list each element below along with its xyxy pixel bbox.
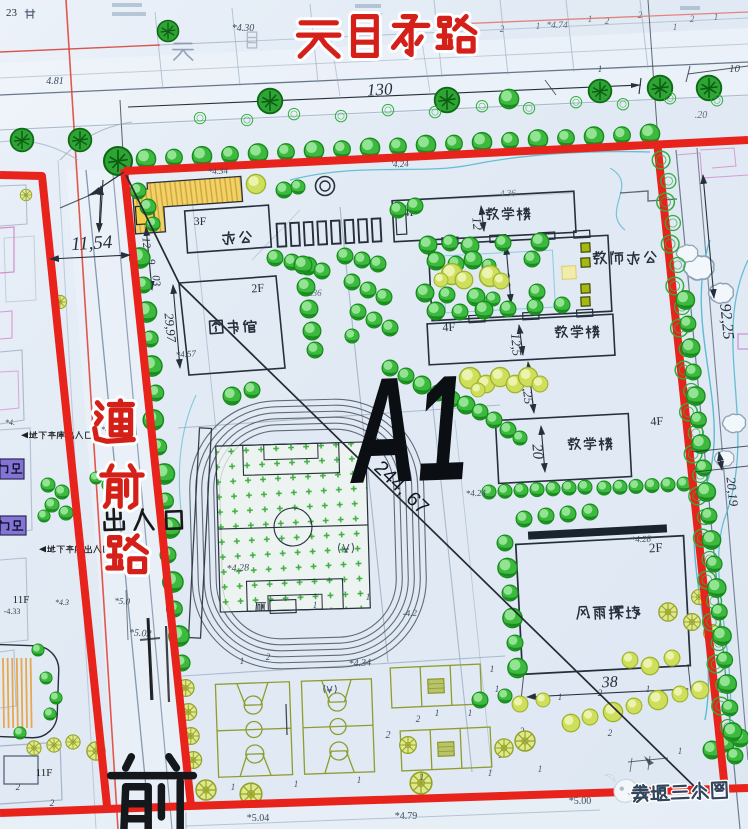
svg-text:20: 20 (528, 443, 545, 460)
svg-text:2: 2 (608, 728, 613, 738)
svg-text:*5.04: *5.04 (247, 813, 270, 824)
svg-text:2: 2 (500, 24, 505, 34)
svg-text:4F: 4F (650, 414, 664, 429)
svg-text:-4.2: -4.2 (402, 608, 417, 619)
svg-text:11,54: 11,54 (71, 232, 114, 255)
svg-text:1: 1 (536, 21, 541, 31)
svg-text:1: 1 (366, 592, 371, 602)
svg-text:2: 2 (386, 730, 391, 741)
svg-text:'4.24: '4.24 (391, 159, 410, 170)
svg-text:*4.: *4. (5, 418, 15, 427)
svg-text:23: 23 (6, 7, 18, 19)
svg-text:*5.0: *5.0 (114, 595, 131, 606)
svg-text:10: 10 (729, 63, 741, 75)
svg-text:2: 2 (16, 782, 21, 792)
svg-text:2: 2 (690, 14, 695, 24)
svg-text:-4.33: -4.33 (4, 607, 21, 616)
svg-text:2: 2 (50, 798, 55, 808)
svg-text:3F: 3F (194, 214, 207, 228)
svg-text:1: 1 (231, 782, 236, 792)
svg-text:.20: .20 (695, 110, 708, 121)
svg-text:2F: 2F (251, 281, 265, 296)
svg-text:*4.28: *4.28 (226, 562, 249, 574)
svg-text:2: 2 (266, 652, 271, 662)
svg-text:*4.79: *4.79 (395, 811, 418, 822)
svg-text:A1: A1 (345, 343, 470, 515)
svg-text:1: 1 (678, 746, 683, 756)
svg-text:4.81: 4.81 (46, 76, 64, 87)
svg-text:*5.00: *5.00 (569, 796, 592, 807)
svg-text:1: 1 (538, 764, 543, 774)
svg-text:29,97: 29,97 (161, 312, 179, 343)
svg-text:*4.74: *4.74 (546, 21, 568, 31)
svg-text:20,19: 20,19 (723, 476, 741, 507)
svg-text:1: 1 (558, 692, 563, 702)
svg-text:*4.34: *4.34 (207, 165, 228, 176)
svg-text:1: 1 (435, 708, 440, 718)
svg-text:38: 38 (600, 674, 618, 692)
svg-text:130: 130 (366, 79, 393, 99)
svg-text:1: 1 (490, 664, 495, 674)
svg-text:*4.57: *4.57 (175, 348, 196, 359)
svg-text:1: 1 (313, 600, 318, 610)
svg-text:1: 1 (294, 779, 299, 789)
svg-text:2: 2 (416, 714, 421, 724)
svg-text:11F: 11F (36, 767, 53, 779)
svg-text:*4.28: *4.28 (630, 533, 651, 544)
svg-text:12: 12 (469, 216, 485, 231)
svg-text:*4.24: *4.24 (465, 487, 486, 498)
svg-text:*4.3: *4.3 (55, 598, 69, 607)
svg-text:12,5: 12,5 (508, 333, 525, 357)
svg-text:4.36: 4.36 (500, 188, 517, 199)
svg-text:1: 1 (420, 772, 425, 782)
svg-text:1: 1 (646, 684, 651, 694)
svg-text:2: 2 (638, 10, 643, 20)
svg-text:1: 1 (468, 708, 473, 718)
svg-text:1: 1 (488, 768, 493, 778)
svg-text:1: 1 (673, 22, 678, 32)
svg-text:1: 1 (357, 775, 362, 785)
svg-text:*4.34: *4.34 (348, 657, 371, 669)
svg-text:1: 1 (598, 64, 603, 74)
svg-text:11F: 11F (13, 594, 30, 606)
svg-text:1: 1 (240, 656, 245, 666)
svg-text:4F: 4F (442, 320, 456, 335)
